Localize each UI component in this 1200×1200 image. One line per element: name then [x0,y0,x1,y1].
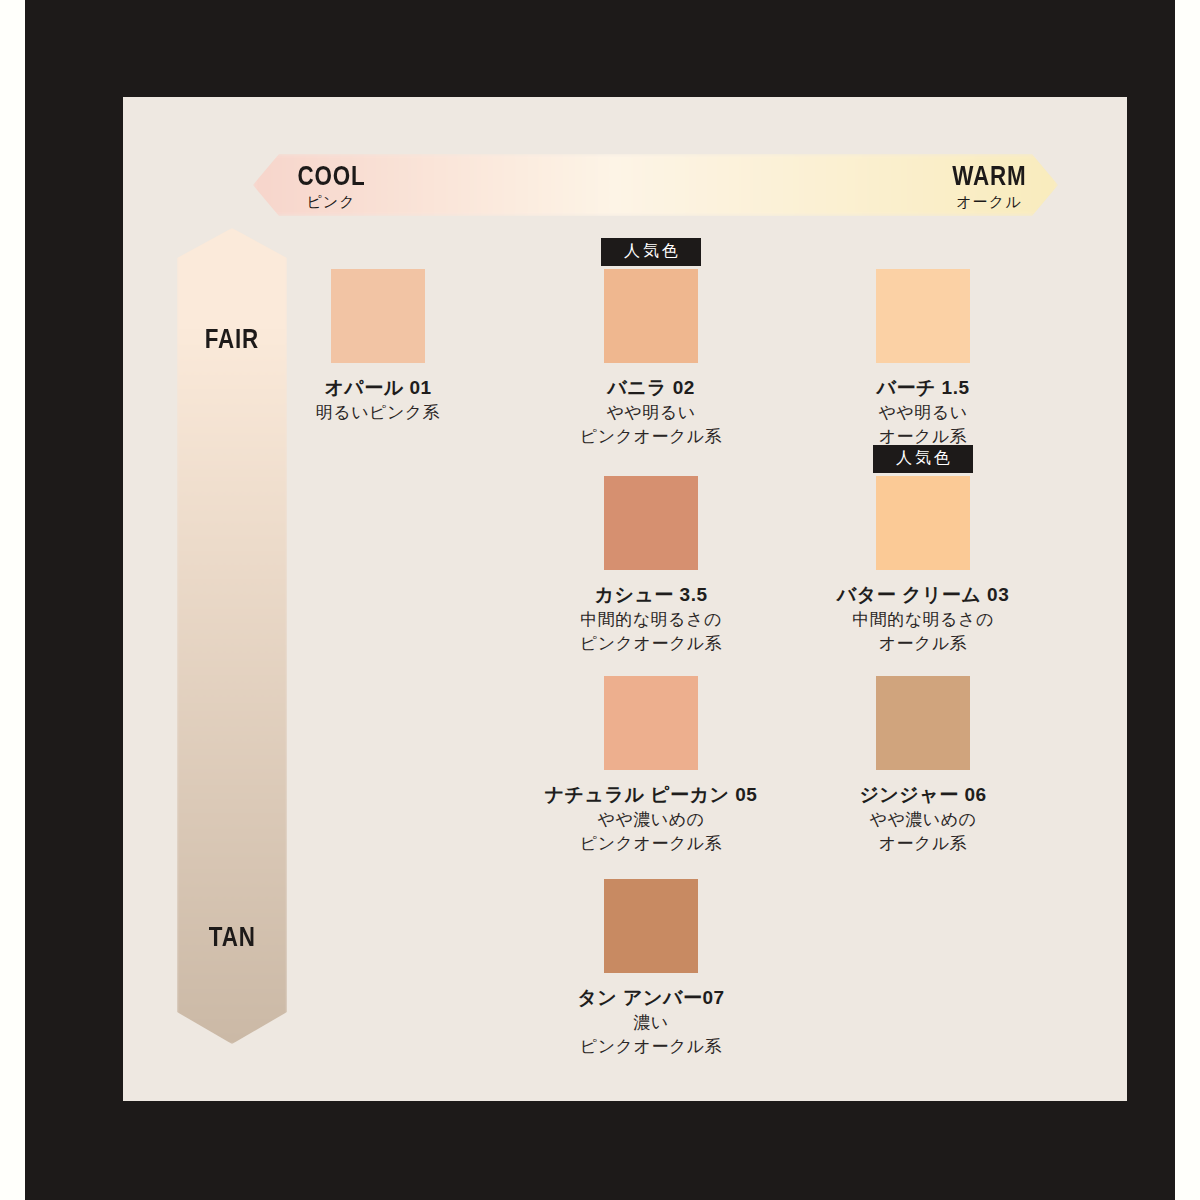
shade-name: バニラ 02 [607,375,695,401]
shade-card-vanilla-02: 人気色 バニラ 02 やや明るい ピンクオークル系 [521,269,781,448]
shade-description: 明るいピンク系 [316,401,441,425]
warm-axis-label: WARM オークル [924,160,1054,212]
shade-description: 中間的な明るさの [580,608,722,632]
shade-swatch [604,879,698,973]
shade-description: オークル系 [879,632,968,656]
black-frame: COOL ピンク WARM オークル FAIR TAN オパール 01 明るいピ… [25,0,1175,1200]
shade-description: やや明るい [878,401,967,425]
shade-description: ピンクオークル系 [580,1035,722,1059]
shade-swatch [876,476,970,570]
warm-label: WARM [952,160,1026,192]
shade-card-tan-amber-07: タン アンバー07 濃い ピンクオークル系 [521,879,781,1058]
shade-name: ナチュラル ピーカン 05 [545,782,758,808]
cool-sublabel: ピンク [266,193,396,212]
shade-description: 中間的な明るさの [852,608,994,632]
tan-label: TAN [209,921,256,953]
shade-name: オパール 01 [324,375,431,401]
cool-label: COOL [297,160,365,192]
shade-description: やや濃いめの [598,808,705,832]
shade-swatch [604,676,698,770]
tan-axis-label: TAN [167,921,297,953]
shade-name: タン アンバー07 [577,985,724,1011]
shade-card-birch-1-5: バーチ 1.5 やや明るい オークル系 [793,269,1053,448]
shade-description: やや明るい [606,401,695,425]
shade-swatch [876,269,970,363]
shade-card-butter-cream-03: 人気色 バター クリーム 03 中間的な明るさの オークル系 [793,476,1053,655]
popular-color-badge: 人気色 [601,238,701,266]
shade-name: カシュー 3.5 [594,582,707,608]
shade-description: 濃い [633,1011,668,1035]
shade-description: ピンクオークル系 [580,425,722,449]
shade-card-ginger-06: ジンジャー 06 やや濃いめの オークル系 [793,676,1053,855]
shade-card-opal-01: オパール 01 明るいピンク系 [248,269,508,425]
shade-swatch [331,269,425,363]
shade-description: ピンクオークル系 [580,632,722,656]
shade-name: バター クリーム 03 [837,582,1009,608]
warm-sublabel: オークル [924,193,1054,212]
popular-color-badge: 人気色 [873,445,973,473]
shade-swatch [876,676,970,770]
shade-name: ジンジャー 06 [859,782,986,808]
shade-card-natural-pecan-05: ナチュラル ピーカン 05 やや濃いめの ピンクオークル系 [521,676,781,855]
shade-description: オークル系 [879,832,968,856]
shade-name: バーチ 1.5 [876,375,969,401]
cool-axis-label: COOL ピンク [266,160,396,212]
shade-chart-panel: COOL ピンク WARM オークル FAIR TAN オパール 01 明るいピ… [123,97,1127,1101]
shade-card-cashew-3-5: カシュー 3.5 中間的な明るさの ピンクオークル系 [521,476,781,655]
shade-description: やや濃いめの [870,808,977,832]
shade-description: ピンクオークル系 [580,832,722,856]
shade-swatch [604,476,698,570]
shade-swatch [604,269,698,363]
